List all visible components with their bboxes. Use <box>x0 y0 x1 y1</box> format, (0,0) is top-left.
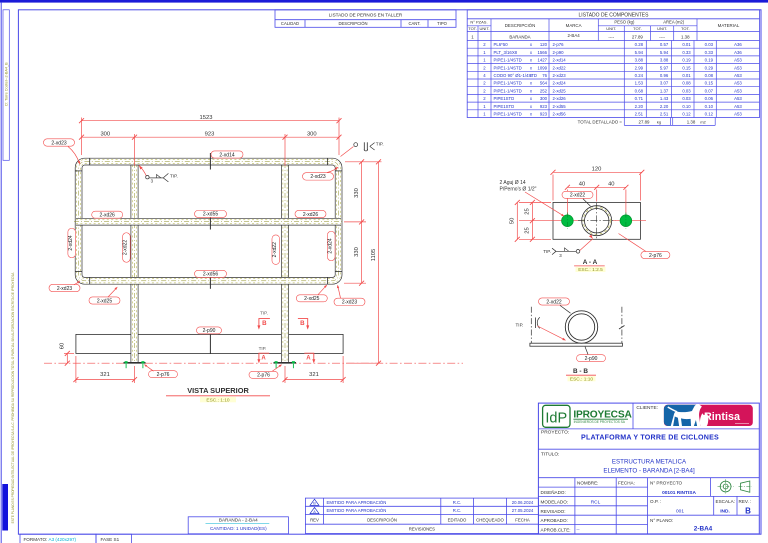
svg-text:B: B <box>745 506 751 515</box>
svg-text:B - B: B - B <box>573 368 588 375</box>
svg-text:0.03: 0.03 <box>682 96 691 101</box>
svg-text:2-xd25: 2-xd25 <box>97 298 113 304</box>
svg-text:LISTADO DE COMPONENTES: LISTADO DE COMPONENTES <box>579 12 650 18</box>
svg-text:A: A <box>306 355 311 361</box>
svg-text:PIPE1-1/4STD: PIPE1-1/4STD <box>494 112 522 117</box>
svg-text:PIPE1STD: PIPE1STD <box>494 104 515 109</box>
svg-text:ESC.: 1:10: ESC.: 1:10 <box>206 398 230 404</box>
svg-text:PLATAFORMA Y TORRE DE CICLONES: PLATAFORMA Y TORRE DE CICLONES <box>581 434 719 442</box>
svg-text:252: 252 <box>540 88 548 93</box>
svg-text:TOT.: TOT. <box>468 26 477 31</box>
svg-text:TIP.: TIP. <box>543 249 551 254</box>
svg-text:2-xd23: 2-xd23 <box>310 174 326 180</box>
svg-text:321: 321 <box>100 372 110 378</box>
svg-text:R.C.: R.C. <box>453 500 462 505</box>
svg-text:ESTE PLANO ES PROPIEDAD INTELE: ESTE PLANO ES PROPIEDAD INTELECTUAL DE I… <box>11 272 15 524</box>
svg-text:P/Perno's Ø 1/2": P/Perno's Ø 1/2" <box>500 186 537 192</box>
svg-text:A53: A53 <box>734 58 742 63</box>
svg-text:27.89: 27.89 <box>632 34 644 39</box>
svg-text:APROBADO:: APROBADO: <box>541 518 568 523</box>
svg-text:A53: A53 <box>734 81 742 86</box>
svg-text:VISTA SUPERIOR: VISTA SUPERIOR <box>187 386 249 395</box>
svg-text:A - A: A - A <box>583 259 598 266</box>
svg-text:0.33: 0.33 <box>705 50 714 55</box>
svg-text:0.57: 0.57 <box>660 42 669 47</box>
svg-text:FORMATO:: FORMATO: <box>24 537 48 542</box>
svg-text:IND.: IND. <box>720 509 730 515</box>
svg-text:5.94: 5.94 <box>635 50 644 55</box>
svg-text:1099: 1099 <box>537 65 547 70</box>
svg-text:CALIDAD: CALIDAD <box>281 21 299 26</box>
svg-text:2-p76: 2-p76 <box>553 42 565 47</box>
svg-text:O.P. :: O.P. : <box>650 499 661 504</box>
svg-text:2.51: 2.51 <box>660 112 669 117</box>
svg-text:0.08: 0.08 <box>705 73 714 78</box>
svg-text:TIP.: TIP. <box>516 323 524 328</box>
svg-text:----: ---- <box>659 34 665 39</box>
svg-text:0.10: 0.10 <box>682 104 691 109</box>
svg-text:2-xd24: 2-xd24 <box>328 238 334 254</box>
svg-text:2-xd23: 2-xd23 <box>57 286 73 292</box>
svg-text:AREA (m2): AREA (m2) <box>663 20 685 25</box>
svg-text:INGENIEROS DE PROYECTOS SA: INGENIEROS DE PROYECTOS SA <box>574 420 626 424</box>
svg-text:TITULO:: TITULO: <box>541 451 559 457</box>
svg-text:5.94: 5.94 <box>660 50 669 55</box>
svg-text:0.03: 0.03 <box>682 88 691 93</box>
svg-text:0.19: 0.19 <box>705 58 714 63</box>
svg-text:2-p76: 2-p76 <box>257 373 270 379</box>
svg-text:2-p76: 2-p76 <box>157 372 170 378</box>
svg-text:2-xd56: 2-xd56 <box>203 272 219 278</box>
svg-text:2-xd24: 2-xd24 <box>553 81 567 86</box>
svg-text:0.28: 0.28 <box>635 42 644 47</box>
svg-text:2.20: 2.20 <box>635 104 644 109</box>
svg-text:----: ---- <box>608 34 614 39</box>
svg-text:2-xd25: 2-xd25 <box>304 296 320 302</box>
svg-text:27.89: 27.89 <box>639 119 651 124</box>
svg-text:76: 76 <box>542 73 547 78</box>
svg-text:0.12: 0.12 <box>705 112 714 117</box>
svg-text:kg: kg <box>657 119 661 124</box>
svg-text:40: 40 <box>579 181 585 187</box>
svg-text:2-p76: 2-p76 <box>649 253 662 259</box>
svg-text:PESO (kg): PESO (kg) <box>614 20 635 25</box>
svg-text:2-xd23: 2-xd23 <box>553 73 567 78</box>
svg-text:--: -- <box>576 528 580 533</box>
svg-text:1.38: 1.38 <box>687 119 696 124</box>
svg-text:0.03: 0.03 <box>705 42 714 47</box>
svg-text:REV: REV <box>310 517 319 522</box>
svg-text:TIP.: TIP. <box>376 142 384 147</box>
svg-text:2-BA4: 2-BA4 <box>567 33 580 38</box>
svg-text:BARANDA: BARANDA <box>509 34 530 39</box>
svg-text:A53: A53 <box>734 65 742 70</box>
svg-text:REVISADO:: REVISADO: <box>541 509 566 514</box>
svg-text:APROB.CLTE:: APROB.CLTE: <box>541 528 571 533</box>
svg-text:001: 001 <box>676 508 684 514</box>
svg-text:CHEQUEADO: CHEQUEADO <box>476 517 504 522</box>
svg-text:A53: A53 <box>734 104 742 109</box>
svg-text:N° PROYECTO: N° PROYECTO <box>650 481 683 486</box>
svg-text:2-xd55: 2-xd55 <box>553 104 567 109</box>
svg-text:UNIT.: UNIT. <box>657 26 667 31</box>
svg-text:D: Torre Coster--2-BA4_B: D: Torre Coster--2-BA4_B <box>4 62 8 106</box>
svg-text:330: 330 <box>354 247 360 257</box>
svg-text:DISEÑADO:: DISEÑADO: <box>541 489 566 495</box>
svg-text:NOMBRE:: NOMBRE: <box>577 481 598 486</box>
svg-text:IdP: IdP <box>545 411 567 427</box>
svg-text:A: A <box>261 355 266 361</box>
svg-text:0.96: 0.96 <box>660 73 669 78</box>
svg-text:N° PZAS.: N° PZAS. <box>470 20 487 25</box>
svg-text:60: 60 <box>59 343 65 349</box>
svg-text:2-p90: 2-p90 <box>203 328 216 334</box>
svg-text:2-xd24: 2-xd24 <box>68 235 74 251</box>
svg-text:2-xd56: 2-xd56 <box>553 112 567 117</box>
svg-text:3.88: 3.88 <box>660 58 669 63</box>
svg-text:1105: 1105 <box>371 249 377 261</box>
svg-text:2.20: 2.20 <box>660 104 669 109</box>
svg-text:FECHA: FECHA <box>515 517 530 522</box>
svg-text:REVISIONES: REVISIONES <box>409 527 435 532</box>
svg-text:2-xd55: 2-xd55 <box>203 212 219 218</box>
svg-text:0.15: 0.15 <box>705 81 714 86</box>
svg-text:0.07: 0.07 <box>705 88 714 93</box>
svg-text:TIP.: TIP. <box>259 346 267 351</box>
svg-text:ESC.: 1:2.5: ESC.: 1:2.5 <box>578 267 603 273</box>
svg-text:0.08: 0.08 <box>682 81 691 86</box>
svg-text:EMITIDO PARA APROBACIÓN: EMITIDO PARA APROBACIÓN <box>327 508 387 513</box>
svg-text:25: 25 <box>525 208 531 214</box>
svg-text:0.71: 0.71 <box>635 96 644 101</box>
svg-text:120: 120 <box>540 42 548 47</box>
svg-text:00101 RINTISA: 00101 RINTISA <box>662 490 696 496</box>
svg-text:1.38: 1.38 <box>681 34 690 39</box>
svg-text:A: A <box>313 510 316 514</box>
svg-text:2-xd26: 2-xd26 <box>553 96 567 101</box>
svg-text:A36: A36 <box>734 50 742 55</box>
svg-text:ELEMENTO - BARANDA [2-BA4]: ELEMENTO - BARANDA [2-BA4] <box>603 467 695 474</box>
svg-text:923: 923 <box>540 112 548 117</box>
svg-text:TOTAL DETALLADO =: TOTAL DETALLADO = <box>578 119 623 124</box>
svg-text:A53: A53 <box>734 112 742 117</box>
svg-text:2-xd26: 2-xd26 <box>100 213 116 219</box>
svg-text:0.29: 0.29 <box>705 65 714 70</box>
svg-text:2-xd26: 2-xd26 <box>303 212 319 218</box>
svg-text:RCL: RCL <box>591 499 601 505</box>
svg-text:ESC.: 1:10: ESC.: 1:10 <box>570 376 594 382</box>
svg-text:FASE S1: FASE S1 <box>101 537 120 542</box>
svg-text:LISTADO DE PERNOS EN TALLER: LISTADO DE PERNOS EN TALLER <box>329 13 403 18</box>
svg-text:N° PLANO:: N° PLANO: <box>650 518 673 523</box>
svg-text:0.68: 0.68 <box>635 88 644 93</box>
svg-text:2-xd22: 2-xd22 <box>570 193 586 199</box>
svg-text:A36: A36 <box>734 42 742 47</box>
svg-text:300: 300 <box>307 132 317 138</box>
svg-text:A53: A53 <box>734 73 742 78</box>
svg-text:2-xd22: 2-xd22 <box>123 240 129 256</box>
svg-text:564: 564 <box>540 81 548 86</box>
svg-text:TIPO: TIPO <box>437 21 448 26</box>
svg-text:PL6*50: PL6*50 <box>494 42 509 47</box>
svg-text:B: B <box>300 320 305 327</box>
svg-text:2-BA4: 2-BA4 <box>694 526 713 533</box>
svg-text:CANT.: CANT. <box>408 21 420 26</box>
svg-text:R.C.: R.C. <box>453 508 462 513</box>
svg-text:0.01: 0.01 <box>682 42 691 47</box>
svg-text:0.19: 0.19 <box>682 58 691 63</box>
svg-text:ESTRUCTURA METALICA: ESTRUCTURA METALICA <box>612 459 687 466</box>
svg-text:5.97: 5.97 <box>660 65 669 70</box>
svg-text:330: 330 <box>354 188 360 198</box>
svg-text:1.43: 1.43 <box>660 96 669 101</box>
svg-text:B: B <box>313 502 316 506</box>
svg-text:UNIT.: UNIT. <box>606 26 616 31</box>
svg-text:40: 40 <box>608 181 614 187</box>
svg-text:923: 923 <box>205 132 215 138</box>
svg-text:0.01: 0.01 <box>682 73 691 78</box>
svg-text:MATERIAL: MATERIAL <box>718 23 740 28</box>
svg-text:TIP.: TIP. <box>170 173 178 178</box>
svg-text:PROYECTO:: PROYECTO: <box>541 430 569 436</box>
svg-text:DESCRIPCIÓN: DESCRIPCIÓN <box>367 517 397 522</box>
svg-text:2-xd23: 2-xd23 <box>342 300 358 306</box>
svg-text:120: 120 <box>592 167 602 173</box>
svg-text:2.99: 2.99 <box>635 65 644 70</box>
svg-text:0.15: 0.15 <box>682 65 691 70</box>
svg-text:27.05.2024: 27.05.2024 <box>512 508 534 513</box>
svg-text:0.06: 0.06 <box>705 96 714 101</box>
svg-text:2-xd23: 2-xd23 <box>51 140 67 146</box>
svg-text:A53: A53 <box>734 88 742 93</box>
svg-text:3.88: 3.88 <box>635 58 644 63</box>
svg-text:FECHA:: FECHA: <box>618 481 635 486</box>
svg-text:3.07: 3.07 <box>660 81 669 86</box>
svg-text:2-xd22: 2-xd22 <box>546 299 562 305</box>
svg-text:PIPE1-1/4STD: PIPE1-1/4STD <box>494 88 522 93</box>
svg-text:DESCRIPCIÓN: DESCRIPCIÓN <box>505 23 536 28</box>
svg-text:1.37: 1.37 <box>660 88 669 93</box>
svg-text:2 Aguj Ø 14: 2 Aguj Ø 14 <box>500 180 526 186</box>
svg-text:EMITIDO PARA APROBACIÓN: EMITIDO PARA APROBACIÓN <box>327 500 387 505</box>
svg-text:m2: m2 <box>700 119 706 124</box>
svg-text:300: 300 <box>100 132 110 138</box>
svg-text:A53: A53 <box>734 96 742 101</box>
svg-text:MODELADO:: MODELADO: <box>541 499 569 504</box>
svg-text:2-xd22: 2-xd22 <box>553 65 567 70</box>
svg-text:50: 50 <box>510 218 516 224</box>
svg-text:CLIENTE:: CLIENTE: <box>636 405 658 411</box>
svg-text:EDITADO: EDITADO <box>448 517 467 522</box>
svg-text:2-p90: 2-p90 <box>585 356 598 362</box>
svg-text:Rintisa: Rintisa <box>704 411 741 423</box>
svg-text:REV. :: REV. : <box>739 499 752 504</box>
svg-text:PLT_3/16X8: PLT_3/16X8 <box>494 50 518 55</box>
svg-text:2.51: 2.51 <box>635 112 644 117</box>
svg-text:300: 300 <box>540 96 548 101</box>
svg-text:321: 321 <box>309 372 319 378</box>
svg-text:CANTIDAD: 1 UNIDAD(ES): CANTIDAD: 1 UNIDAD(ES) <box>210 526 267 531</box>
svg-text:PIPE1-1/4STD: PIPE1-1/4STD <box>494 58 522 63</box>
svg-text:0.12: 0.12 <box>682 112 691 117</box>
svg-text:20.06.2024: 20.06.2024 <box>512 500 534 505</box>
svg-text:2-p90: 2-p90 <box>553 50 565 55</box>
svg-text:1.53: 1.53 <box>635 81 644 86</box>
svg-text:TOT.: TOT. <box>681 26 690 31</box>
svg-text:0.10: 0.10 <box>705 104 714 109</box>
svg-text:25: 25 <box>525 227 531 233</box>
svg-text:2-xd14: 2-xd14 <box>219 152 235 158</box>
svg-text:1523: 1523 <box>200 115 213 121</box>
svg-text:PIPE1STD: PIPE1STD <box>494 96 515 101</box>
svg-text:2-xd25: 2-xd25 <box>553 88 567 93</box>
svg-text:BARANDA - 2-BA4: BARANDA - 2-BA4 <box>219 518 258 523</box>
svg-text:923: 923 <box>540 104 548 109</box>
svg-text:ESCALA:: ESCALA: <box>716 499 735 504</box>
svg-text:MARCA: MARCA <box>566 23 582 28</box>
svg-text:TOT.: TOT. <box>633 26 642 31</box>
svg-text:2-xd14: 2-xd14 <box>553 58 567 63</box>
svg-text:0.24: 0.24 <box>635 73 644 78</box>
svg-text:PIPE1-1/4STD: PIPE1-1/4STD <box>494 81 522 86</box>
svg-text:2-xd22: 2-xd22 <box>272 242 278 258</box>
svg-text:1427: 1427 <box>537 58 547 63</box>
svg-text:1566: 1566 <box>537 50 547 55</box>
svg-text:0.33: 0.33 <box>682 50 691 55</box>
svg-text:TIP.: TIP. <box>260 311 268 316</box>
svg-text:UNIT.: UNIT. <box>480 26 490 31</box>
svg-text:DESCRIPCIÓN: DESCRIPCIÓN <box>338 21 367 26</box>
svg-text:PIPE1-1/4STD: PIPE1-1/4STD <box>494 65 522 70</box>
svg-text:B: B <box>262 320 267 327</box>
svg-text:A3 (420x297): A3 (420x297) <box>49 537 77 542</box>
